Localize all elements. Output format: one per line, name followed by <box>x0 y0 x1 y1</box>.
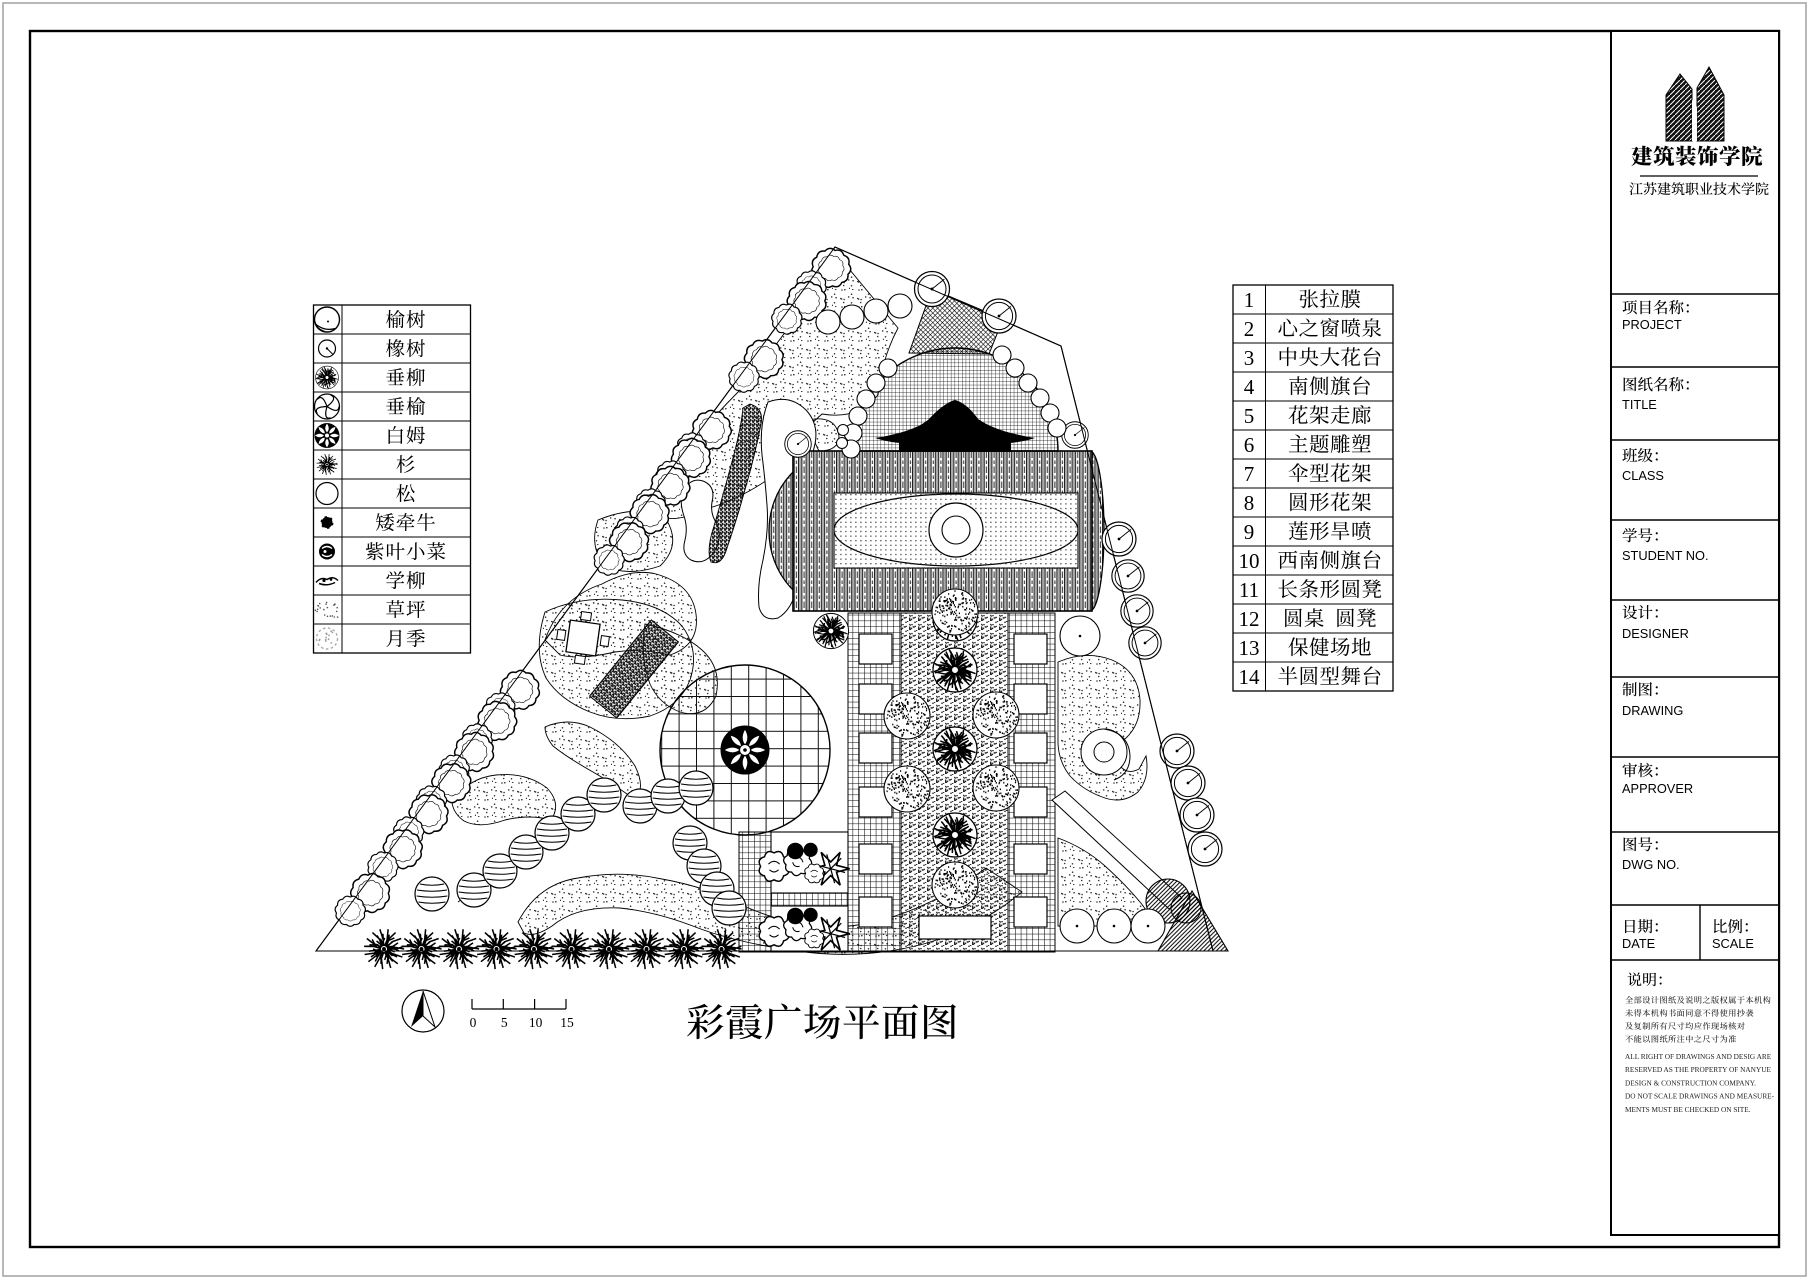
svg-text:DATE: DATE <box>1622 936 1655 951</box>
svg-text:15: 15 <box>560 1015 574 1030</box>
svg-text:DO NOT SCALE DRAWINGS AND MEAS: DO NOT SCALE DRAWINGS AND MEASURE- <box>1625 1092 1775 1101</box>
svg-text:13: 13 <box>1239 636 1260 660</box>
svg-text:10: 10 <box>529 1015 543 1030</box>
svg-text:DRAWING: DRAWING <box>1622 703 1683 718</box>
svg-text:DESIGN & CONSTRUCTION COMPANY.: DESIGN & CONSTRUCTION COMPANY. <box>1625 1078 1756 1087</box>
svg-text:SCALE: SCALE <box>1712 936 1754 951</box>
svg-text:1: 1 <box>1244 288 1255 312</box>
svg-text:TITLE: TITLE <box>1622 397 1657 412</box>
svg-text:6: 6 <box>1244 433 1255 457</box>
svg-text:DWG NO.: DWG NO. <box>1622 857 1680 872</box>
svg-text:PROJECT: PROJECT <box>1622 317 1682 332</box>
svg-text:9: 9 <box>1244 520 1255 544</box>
svg-text:11: 11 <box>1239 578 1259 602</box>
svg-text:CLASS: CLASS <box>1622 468 1664 483</box>
svg-text:8: 8 <box>1244 491 1255 515</box>
svg-text:MENTS MUST BE CHECKED ON SITE.: MENTS MUST BE CHECKED ON SITE. <box>1625 1105 1751 1114</box>
svg-text:10: 10 <box>1239 549 1260 573</box>
svg-text:5: 5 <box>1244 404 1255 428</box>
svg-text:RESERVED AS THE PROPERTY OF NA: RESERVED AS THE PROPERTY OF NANYUE <box>1625 1065 1771 1074</box>
svg-text:12: 12 <box>1239 607 1260 631</box>
svg-text:5: 5 <box>501 1015 508 1030</box>
svg-text:2: 2 <box>1244 317 1255 341</box>
svg-text:STUDENT NO.: STUDENT NO. <box>1622 548 1709 563</box>
svg-text:14: 14 <box>1239 665 1261 689</box>
svg-text:APPROVER: APPROVER <box>1622 781 1693 796</box>
svg-text:DESIGNER: DESIGNER <box>1622 626 1689 641</box>
svg-text:0: 0 <box>470 1015 477 1030</box>
svg-text:7: 7 <box>1244 462 1255 486</box>
svg-text:ALL RIGHT OF DRAWINGS AND DESI: ALL RIGHT OF DRAWINGS AND DESIG ARE <box>1625 1052 1772 1061</box>
svg-text:3: 3 <box>1244 346 1255 370</box>
svg-text:4: 4 <box>1244 375 1255 399</box>
